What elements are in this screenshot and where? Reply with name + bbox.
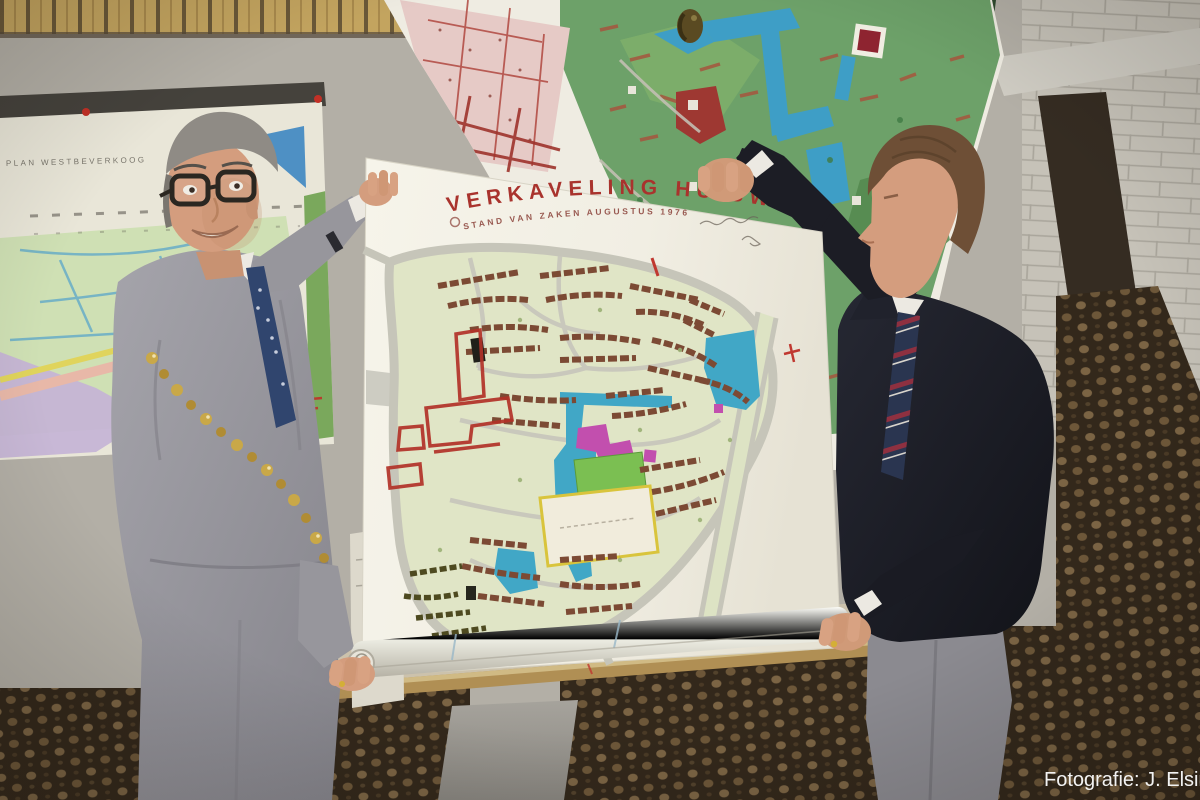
photo-credit: Fotografie: J. Elsinga	[1044, 769, 1200, 791]
photo-scene: PLAN WESTBEVERKOOG	[0, 0, 1200, 800]
photo-canvas: PLAN WESTBEVERKOOG	[0, 0, 1200, 800]
vignette-overlay	[0, 0, 1200, 800]
